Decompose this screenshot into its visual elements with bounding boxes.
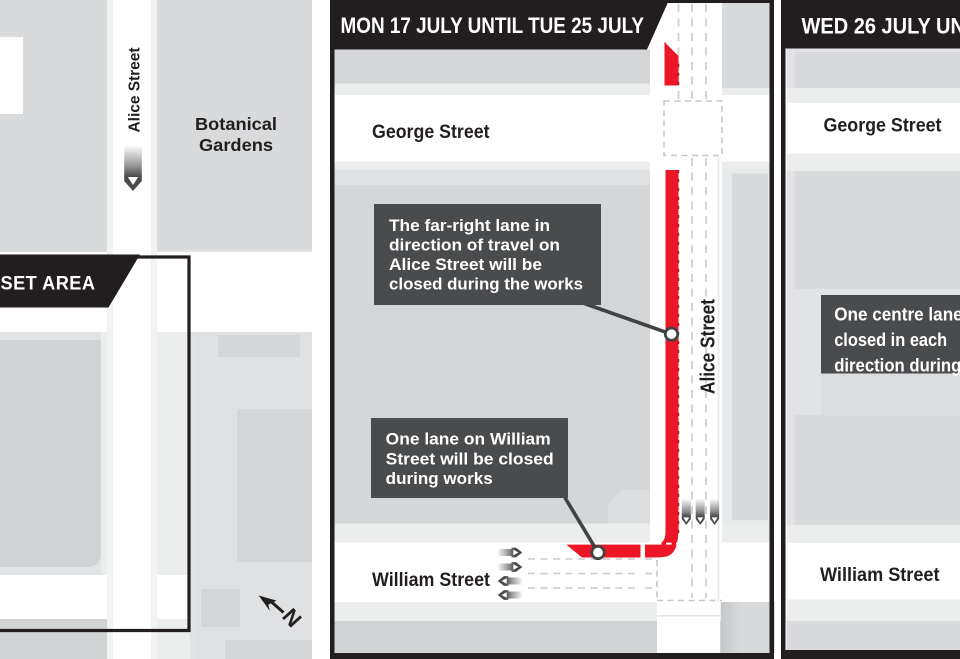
svg-text:WED 26 JULY UNTIL WED 2: WED 26 JULY UNTIL WED 2 [802, 14, 960, 39]
svg-text:closed during the works: closed during the works [389, 275, 583, 294]
svg-text:George Street: George Street [824, 115, 942, 137]
svg-text:Alice Street: Alice Street [698, 299, 720, 394]
svg-text:The far-right lane in: The far-right lane in [389, 216, 550, 235]
svg-text:Alice Street will be: Alice Street will be [389, 255, 542, 274]
svg-text:Street will be closed: Street will be closed [386, 449, 554, 468]
svg-text:George Street: George Street [372, 121, 490, 143]
svg-text:during works: during works [386, 469, 493, 488]
svg-text:Botanical: Botanical [195, 114, 277, 134]
svg-text:William Street: William Street [820, 564, 940, 586]
svg-text:SET AREA: SET AREA [1, 274, 96, 295]
svg-text:closed in each: closed in each [834, 329, 947, 350]
svg-text:One centre lane will be: One centre lane will be [834, 304, 960, 325]
svg-text:One lane on William: One lane on William [386, 430, 551, 449]
svg-text:Gardens: Gardens [199, 135, 273, 155]
svg-text:MON 17 JULY UNTIL TUE 25 JULY: MON 17 JULY UNTIL TUE 25 JULY [341, 13, 645, 38]
svg-text:Alice Street: Alice Street [127, 48, 144, 133]
svg-text:William Street: William Street [372, 569, 490, 591]
svg-text:direction during the works: direction during the works [834, 355, 960, 376]
svg-text:direction of travel on: direction of travel on [389, 236, 560, 255]
